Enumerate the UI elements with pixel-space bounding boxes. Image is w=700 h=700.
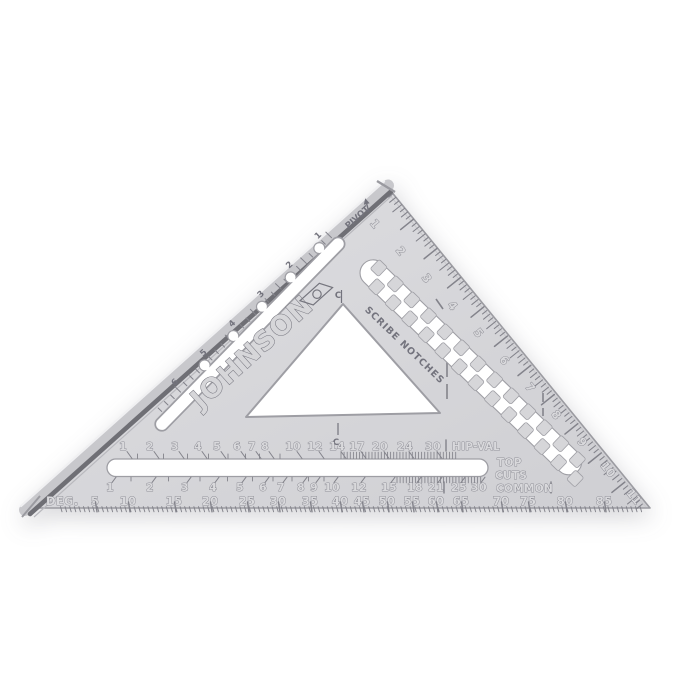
common-number: 30 — [471, 481, 487, 494]
degree-number: 55 — [404, 494, 421, 508]
hip-val-number: 8 — [261, 440, 269, 453]
hip-val-number: 12 — [307, 440, 323, 453]
hip-val-number: 17 — [349, 440, 365, 453]
top-cuts-label-line2: CUTS — [495, 470, 527, 482]
degree-number: 85 — [596, 494, 613, 508]
bottom-slot-cutout — [107, 459, 488, 477]
degree-number: 60 — [428, 494, 445, 508]
hip-val-number: 14 — [329, 440, 345, 453]
common-number: 8 — [297, 481, 305, 494]
common-number: 12 — [351, 481, 367, 494]
product-photo-canvas: 123456 JOHNSON PIVOT C C SCRIBE NOTCHES — [0, 0, 700, 700]
top-cuts-label-line1: TOP — [497, 457, 522, 469]
degree-number: 30 — [270, 494, 287, 508]
hip-val-number: 5 — [213, 440, 221, 453]
common-number: 3 — [181, 481, 189, 494]
hip-val-number: 10 — [285, 440, 301, 453]
common-number: 5 — [236, 481, 244, 494]
degree-number: 25 — [239, 494, 256, 508]
degree-number: 35 — [302, 494, 319, 508]
degree-number: 15 — [166, 494, 183, 508]
common-number: 4 — [209, 481, 217, 494]
hip-val-number: 3 — [171, 440, 179, 453]
degree-number: 65 — [453, 494, 470, 508]
hip-val-number: 4 — [194, 440, 202, 453]
hip-val-number: 2 — [146, 440, 154, 453]
degree-number: 70 — [493, 494, 510, 508]
common-number: 21 — [428, 481, 444, 494]
common-number: 7 — [277, 481, 285, 494]
degree-number: 5 — [91, 494, 99, 508]
degree-number: 80 — [557, 494, 574, 508]
hip-val-number: 1 — [119, 440, 127, 453]
deg-label: DEG. — [46, 494, 78, 508]
degree-number: 50 — [379, 494, 396, 508]
common-number: 15 — [381, 481, 397, 494]
centerline-letter: C — [335, 291, 341, 301]
common-number: 2 — [146, 481, 154, 494]
hip-val-number: 24 — [397, 440, 413, 453]
common-number: 6 — [259, 481, 267, 494]
hip-val-number: 20 — [372, 440, 388, 453]
degree-number: 75 — [520, 494, 537, 508]
common-number: 1 — [106, 481, 114, 494]
common-label: COMMON — [496, 483, 553, 495]
common-number: 9 — [310, 481, 318, 494]
degree-number: 40 — [332, 494, 349, 508]
common-number: 10 — [324, 481, 340, 494]
hip-val-number: 6 — [233, 440, 241, 453]
hip-val-number: 7 — [248, 440, 256, 453]
degree-number: 20 — [202, 494, 219, 508]
hip-val-number: 30 — [425, 440, 441, 453]
degree-number: 45 — [354, 494, 371, 508]
hip-val-label: HIP-VAL — [452, 441, 500, 453]
degree-number: 10 — [120, 494, 137, 508]
rafter-square-photo: 123456 JOHNSON PIVOT C C SCRIBE NOTCHES — [0, 0, 700, 700]
